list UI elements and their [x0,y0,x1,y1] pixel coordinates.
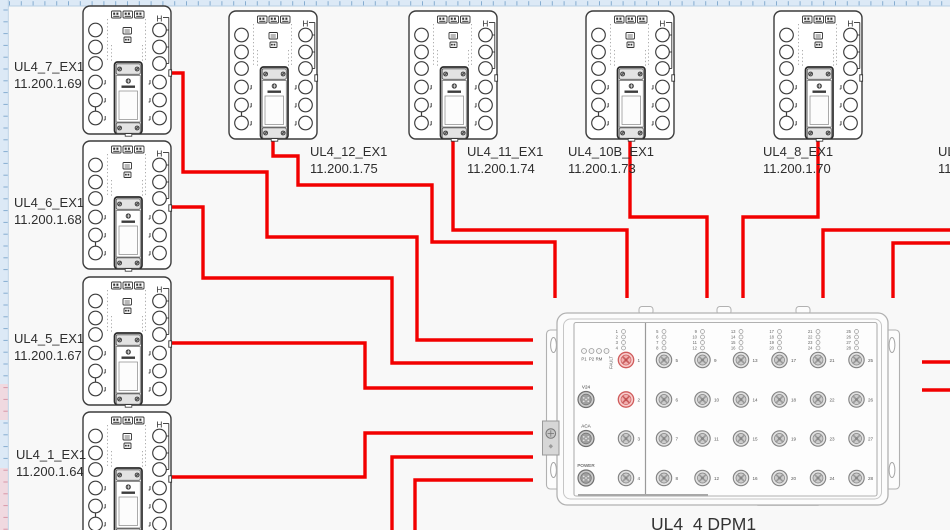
dpm-led-number: 11 [693,340,698,345]
h-port-group-label: H [848,20,854,29]
dpm-port-number: 2 [638,397,641,402]
device-UL4_12_EX1[interactable]: H [229,11,318,141]
dpm-led-number: 15 [731,340,736,345]
dpm-layer: P1P2RMFAULT12345678910111213141516171819… [543,307,900,506]
wire-ul4_8[interactable] [743,134,818,298]
dpm-led-number: 13 [731,329,736,334]
wire-ul4_12[interactable] [273,134,555,298]
dpm-status-led-label: P2 [589,357,595,362]
dpm-port-number: 28 [868,476,874,481]
dpm-port-number: 6 [676,397,679,402]
dpm-port-number: 26 [868,397,874,402]
dpm-status-led-label: FAULT [609,356,614,369]
h-port-group-label: H [303,20,309,29]
dpm-led-number: 19 [769,340,774,345]
dpm-led-number: 12 [692,346,697,351]
h-port-group-label: H [157,421,163,430]
dpm-port-number: 10 [714,397,720,402]
wire-ul4_11[interactable] [453,134,627,298]
dpm-led-number: 26 [846,335,851,340]
wire-ul4_1[interactable] [172,433,533,477]
dpm-led-number: 21 [808,329,813,334]
dpm-led-number: 23 [808,340,813,345]
dpm-port-number: 11 [714,436,719,441]
dpm-status-led-label: RM [596,357,603,362]
dpm-port-number: 14 [753,397,759,402]
wire-ul4_10b[interactable] [630,134,707,298]
wire-offscreen_bottom_2[interactable] [415,480,533,530]
dpm-connector-label: ACA [581,424,591,429]
dpm-port-number: 7 [676,436,679,441]
dpm-port-number: 19 [791,436,797,441]
dpm-led-number: 28 [846,346,851,351]
h-port-group-label: H [157,150,163,159]
device-UL4_11_EX1[interactable]: H [409,11,498,141]
dpm-led-number: 25 [846,329,851,334]
h-port-group-label: H [157,15,163,24]
dpm-led-number: 14 [731,335,736,340]
dpm-led-number: 17 [769,329,774,334]
device-UL4_1_EX1[interactable]: H [83,412,172,530]
dpm-connector-label: POWER [577,463,595,468]
dpm-port-number: 20 [791,476,797,481]
device-UL4_10B_EX1[interactable]: H [586,11,675,141]
dpm-port-number: 5 [676,358,679,363]
device-UL4_8_EX1[interactable]: H [774,11,863,141]
device-UL4_6_EX1[interactable]: H [83,141,172,271]
wire-offscreen_right_2[interactable] [893,243,950,298]
device-UL4_7_EX1[interactable]: H [83,6,172,136]
wire-offscreen_bottom_1[interactable] [392,457,533,530]
dpm-led-number: 27 [846,340,851,345]
wire-offscreen_right_1[interactable] [823,230,950,298]
wire-ul4_5[interactable] [172,343,533,388]
dpm-port-number: 1 [638,358,641,363]
dpm-port-number: 23 [830,436,836,441]
dpm-port-number: 21 [830,358,836,363]
dpm-port-number: 12 [714,476,720,481]
h-port-group-label: H [660,20,666,29]
dpm-led-number: 24 [808,346,813,351]
dpm-status-led-label: P1 [581,357,587,362]
dpm-led-number: 22 [808,335,813,340]
dpm-port-number: 4 [638,476,641,481]
dpm-led-number: 10 [692,335,697,340]
dpm-port-number: 27 [868,436,874,441]
dpm-led-number: 20 [769,346,774,351]
dpm-device[interactable]: P1P2RMFAULT12345678910111213141516171819… [543,307,900,506]
dpm-port-number: 17 [791,358,797,363]
dpm-port-number: 15 [753,436,759,441]
dpm-port-number: 16 [753,476,759,481]
diagram-canvas: HHHHHHHH P1P2RMFAULT12345678910111213141… [0,0,950,530]
h-port-group-label: H [483,20,489,29]
dpm-led-number: 18 [769,335,774,340]
h-port-group-label: H [157,286,163,295]
device-UL4_5_EX1[interactable]: H [83,277,172,407]
dpm-port-number: 9 [714,358,717,363]
dpm-port-number: 25 [868,358,874,363]
dpm-port-number: 13 [753,358,759,363]
dpm-connector-label: V24 [582,385,591,390]
dpm-port-number: 22 [830,397,836,402]
dpm-port-number: 24 [830,476,836,481]
dpm-port-number: 8 [676,476,679,481]
diagram-scene: HHHHHHHH P1P2RMFAULT12345678910111213141… [0,0,950,530]
dpm-led-number: 16 [731,346,736,351]
dpm-port-number: 3 [638,436,641,441]
dpm-port-number: 18 [791,397,797,402]
